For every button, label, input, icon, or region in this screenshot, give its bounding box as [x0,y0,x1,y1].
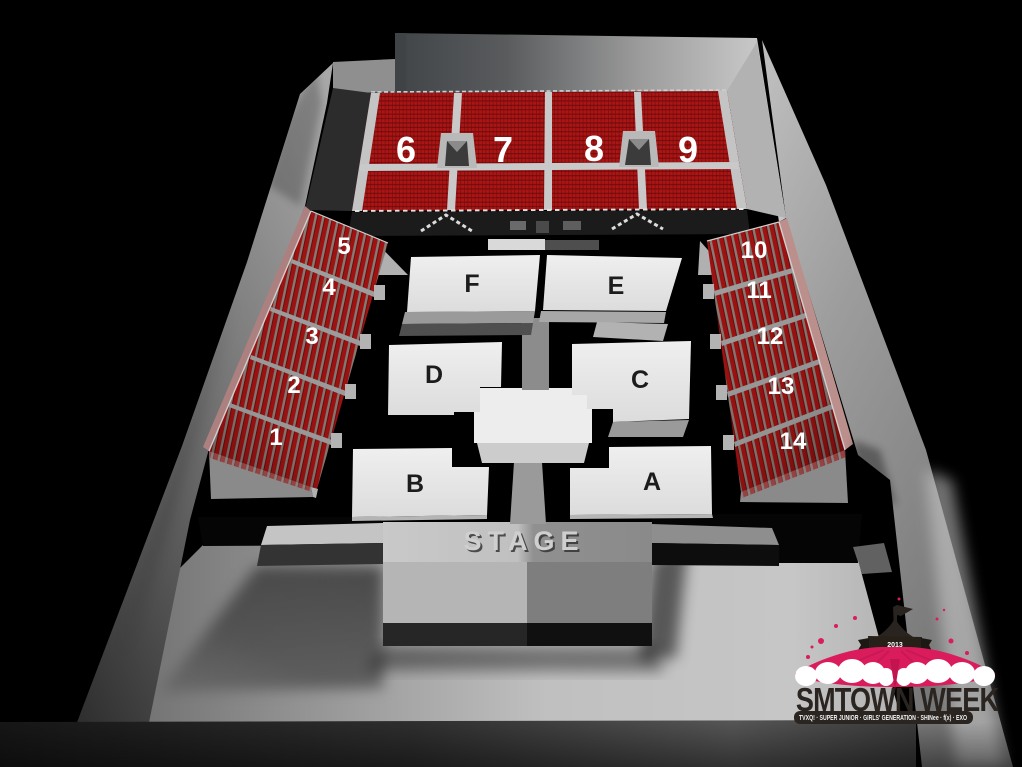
svg-text:E: E [608,272,625,300]
svg-text:13: 13 [768,373,795,400]
svg-text:4: 4 [322,274,336,301]
svg-text:F: F [464,270,479,298]
svg-text:9: 9 [678,129,698,170]
svg-text:A: A [643,468,661,496]
svg-text:2: 2 [287,372,300,399]
svg-text:14: 14 [780,428,807,455]
svg-text:TVXQ! · SUPER JUNIOR · GIRLS': TVXQ! · SUPER JUNIOR · GIRLS' GENERATION… [799,715,967,722]
svg-text:11: 11 [746,277,771,304]
svg-text:3: 3 [305,323,318,350]
svg-text:5: 5 [337,233,350,260]
svg-text:10: 10 [741,237,768,264]
svg-text:1: 1 [269,424,282,451]
svg-text:D: D [425,361,443,389]
svg-text:7: 7 [493,129,513,170]
svg-text:12: 12 [757,323,784,350]
svg-text:6: 6 [396,129,416,170]
svg-text:C: C [631,366,649,394]
svg-text:STAGE: STAGE [463,526,584,556]
svg-text:B: B [406,470,424,498]
svg-text:8: 8 [584,128,604,169]
